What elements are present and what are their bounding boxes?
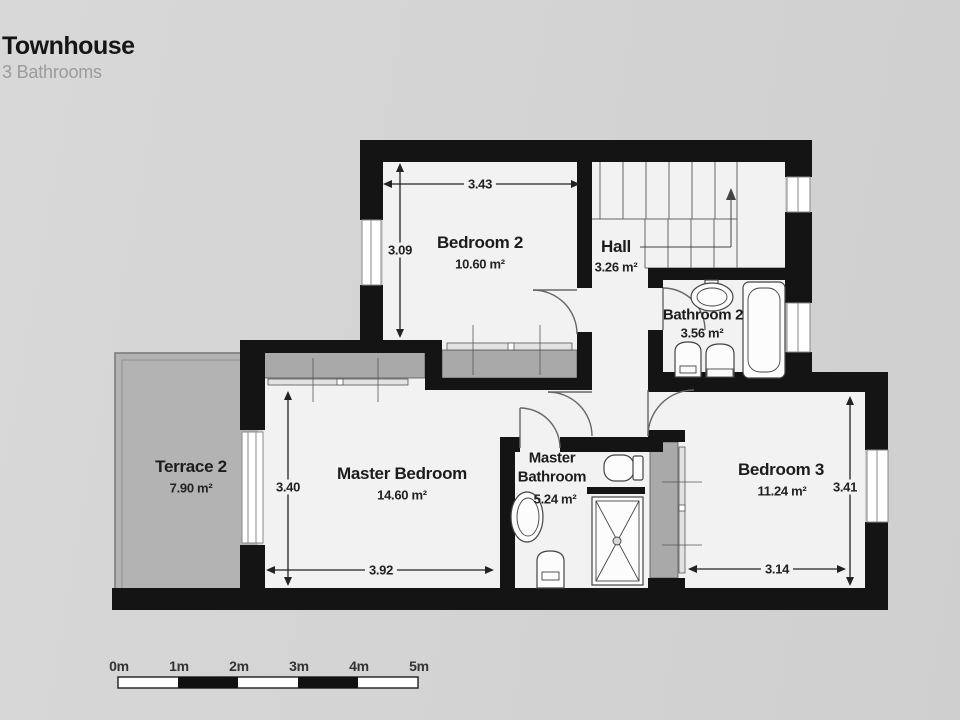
dim-bedroom3-height: 3.41 xyxy=(829,480,861,495)
scale-label-0m: 0m xyxy=(109,658,129,674)
room-label-hall: Hall xyxy=(601,237,631,257)
room-area-bathroom2: 3.56 m² xyxy=(681,326,724,341)
scale-label-2m: 2m xyxy=(229,658,249,674)
room-label-terrace2: Terrace 2 xyxy=(155,457,227,477)
room-area-bedroom2: 10.60 m² xyxy=(455,257,505,272)
dim-bedroom3-width: 3.14 xyxy=(761,562,793,577)
floorplan-drawing xyxy=(0,0,960,720)
room-area-terrace2: 7.90 m² xyxy=(170,481,213,496)
room-label-master-bathroom: Master Bathroom xyxy=(506,449,598,487)
room-label-bedroom2: Bedroom 2 xyxy=(437,233,523,253)
dim-master-height: 3.40 xyxy=(272,480,304,495)
room-area-bedroom3: 11.24 m² xyxy=(758,484,807,499)
scale-label-1m: 1m xyxy=(169,658,189,674)
room-area-master-bathroom: 5.24 m² xyxy=(534,492,577,507)
scale-label-5m: 5m xyxy=(409,658,429,674)
toilet-icon xyxy=(537,551,564,588)
scale-label-4m: 4m xyxy=(349,658,369,674)
terrace-sliding-door xyxy=(242,432,263,543)
dim-bedroom2-height: 3.09 xyxy=(384,243,416,258)
room-label-bedroom3: Bedroom 3 xyxy=(738,460,824,480)
page-title: Townhouse xyxy=(2,32,135,61)
page-subtitle: 3 Bathrooms xyxy=(2,62,102,83)
scale-label-3m: 3m xyxy=(289,658,309,674)
dim-bedroom2-width: 3.43 xyxy=(464,177,496,192)
floorplan-page: Townhouse 3 Bathrooms Bedroom 2 10.60 m²… xyxy=(0,0,960,720)
scale-bar xyxy=(118,677,418,688)
room-label-bathroom2: Bathroom 2 xyxy=(663,307,743,324)
toilet-icon xyxy=(604,455,634,481)
room-area-hall: 3.26 m² xyxy=(595,260,638,275)
dim-master-width: 3.92 xyxy=(365,563,397,578)
room-label-master-bedroom: Master Bedroom xyxy=(337,464,467,484)
room-area-master-bedroom: 14.60 m² xyxy=(377,488,427,503)
